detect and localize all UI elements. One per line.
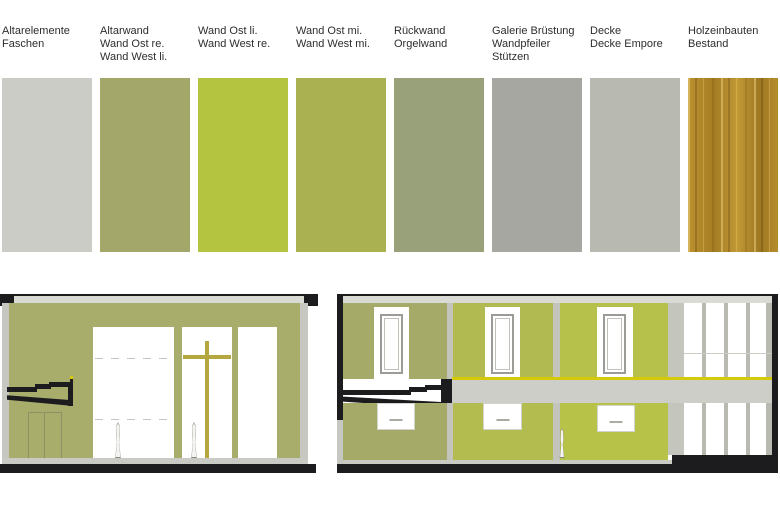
swatch-label-holzeinbauten: Holzeinbauten Bestand <box>688 25 780 51</box>
glazing-transom-line <box>684 353 772 354</box>
glazing-mullion <box>702 403 706 455</box>
altar-panel-large <box>93 327 174 458</box>
color-swatch-decke <box>590 78 680 252</box>
color-swatch-galerie <box>492 78 582 252</box>
color-swatch-wand-ost-li <box>198 78 288 252</box>
color-swatch-rueckwand <box>394 78 484 252</box>
upper-window <box>485 307 520 379</box>
window-frame <box>380 314 403 374</box>
lower-glazing <box>684 403 772 455</box>
swatch-label-wand-ost-li: Wand Ost li. Wand West re. <box>198 25 294 51</box>
wall-section-right <box>300 303 308 458</box>
handrail-post <box>70 379 73 390</box>
color-swatch-wand-ost-mi <box>296 78 386 252</box>
wall-cut-right-black <box>772 294 778 473</box>
upper-window <box>374 307 409 379</box>
stair-step <box>341 390 411 395</box>
wall-pilaster <box>553 403 560 460</box>
swatch-label-rueckwand: Rückwand Orgelwand <box>394 25 490 51</box>
lower-window <box>377 403 415 430</box>
swatch-label-wand-ost-mi: Wand Ost mi. Wand West mi. <box>296 25 392 51</box>
stair-step <box>49 382 69 387</box>
lower-window <box>597 405 635 432</box>
glazing-mullion <box>724 403 728 455</box>
gallery-stairs-section <box>7 382 73 406</box>
window-frame <box>491 314 514 374</box>
floor-base-black <box>337 464 778 473</box>
lower-window <box>483 403 522 430</box>
gallery-column <box>668 403 684 455</box>
door-center-line <box>44 413 45 459</box>
swatch-label-galerie: Galerie Brüstung Wandpfeiler Stützen <box>492 25 588 64</box>
ceiling-band <box>343 296 772 303</box>
glazing-mullion <box>724 303 728 379</box>
wall-section-left <box>2 303 9 458</box>
altar-panel-right <box>238 327 277 458</box>
window-frame <box>603 314 626 374</box>
gallery-column <box>668 303 684 379</box>
stair-step <box>425 385 441 390</box>
floor-base-black <box>0 464 316 473</box>
swatch-label-decke: Decke Decke Empore <box>590 25 686 51</box>
color-swatch-holzeinbauten-wood <box>688 78 778 252</box>
upper-window <box>597 307 633 379</box>
swatch-label-altarelemente: Altarelemente Faschen <box>2 25 98 51</box>
upper-glazing <box>684 303 772 379</box>
panel-joint-dashed-line <box>95 358 172 359</box>
glazing-mullion <box>702 303 706 379</box>
glazing-end-pier <box>766 303 772 379</box>
gallery-floor-slab <box>452 380 772 404</box>
glazing-end-pier <box>766 403 772 455</box>
color-swatch-altarelemente <box>2 78 92 252</box>
double-door-outline <box>28 412 62 460</box>
wall-pilaster <box>553 303 560 379</box>
glazing-mullion <box>746 303 750 379</box>
ceiling-band <box>0 296 318 303</box>
panel-joint-dashed-line <box>95 419 172 420</box>
swatch-label-altarwand: Altarwand Wand Ost re. Wand West li. <box>100 25 196 64</box>
section-drawing-cross <box>0 294 318 473</box>
section-drawing-longitudinal <box>337 294 778 473</box>
glazing-mullion <box>746 403 750 455</box>
altar-cross-horizontal <box>183 355 231 359</box>
stair-step <box>7 387 37 392</box>
color-swatch-altarwand <box>100 78 190 252</box>
